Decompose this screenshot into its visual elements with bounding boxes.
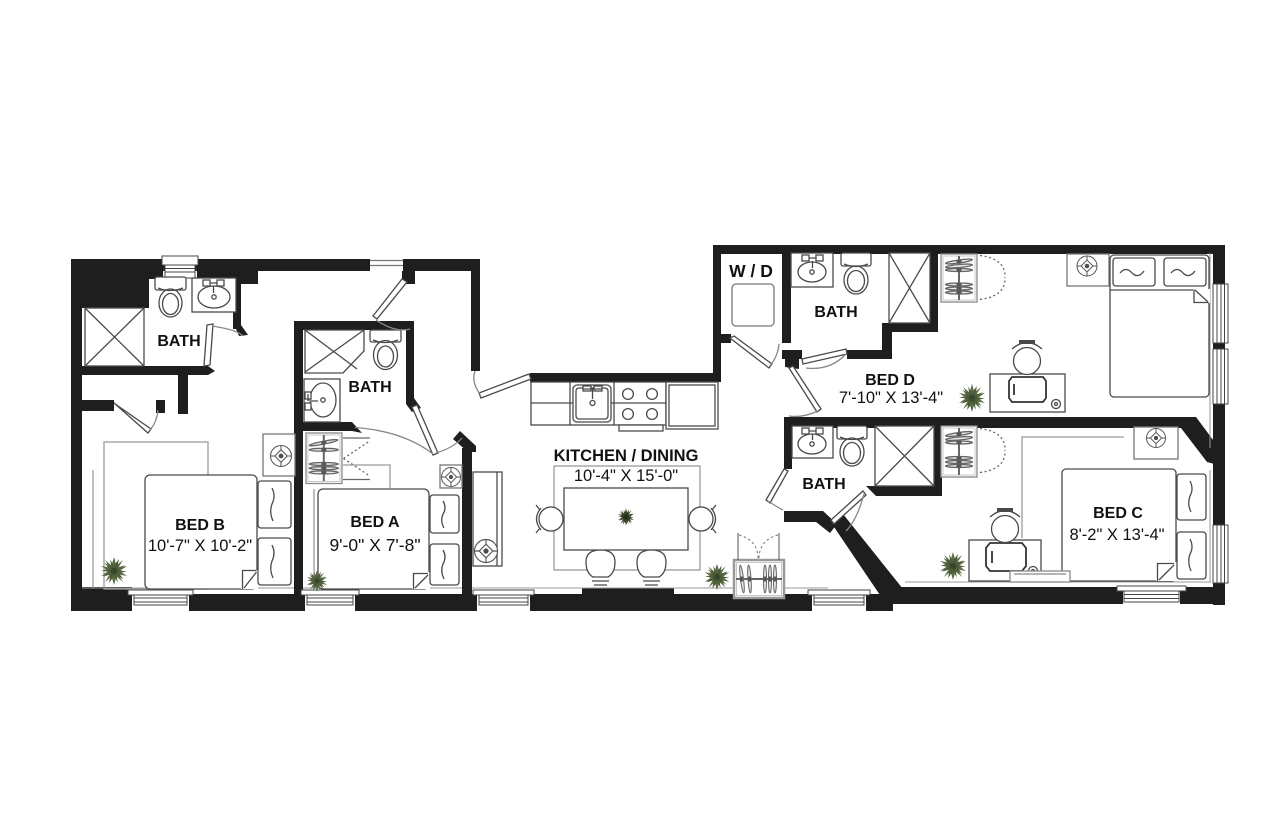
svg-text:KITCHEN / DINING: KITCHEN / DINING <box>554 447 699 465</box>
svg-text:10'-4" X 15'-0": 10'-4" X 15'-0" <box>574 467 678 485</box>
svg-text:BED B: BED B <box>175 517 225 534</box>
svg-text:BED C: BED C <box>1093 505 1143 522</box>
svg-text:BATH: BATH <box>802 476 845 493</box>
svg-text:BATH: BATH <box>348 379 391 396</box>
svg-text:W / D: W / D <box>729 261 773 281</box>
svg-text:BED A: BED A <box>350 514 400 531</box>
svg-text:9'-0" X 7'-8": 9'-0" X 7'-8" <box>329 535 420 555</box>
svg-text:8'-2" X 13'-4": 8'-2" X 13'-4" <box>1069 526 1164 544</box>
svg-text:BED D: BED D <box>865 372 915 389</box>
svg-text:BATH: BATH <box>814 304 857 321</box>
svg-text:BATH: BATH <box>157 333 200 350</box>
svg-text:10'-7" X 10'-2": 10'-7" X 10'-2" <box>148 537 252 555</box>
svg-text:7'-10" X 13'-4": 7'-10" X 13'-4" <box>839 389 943 407</box>
